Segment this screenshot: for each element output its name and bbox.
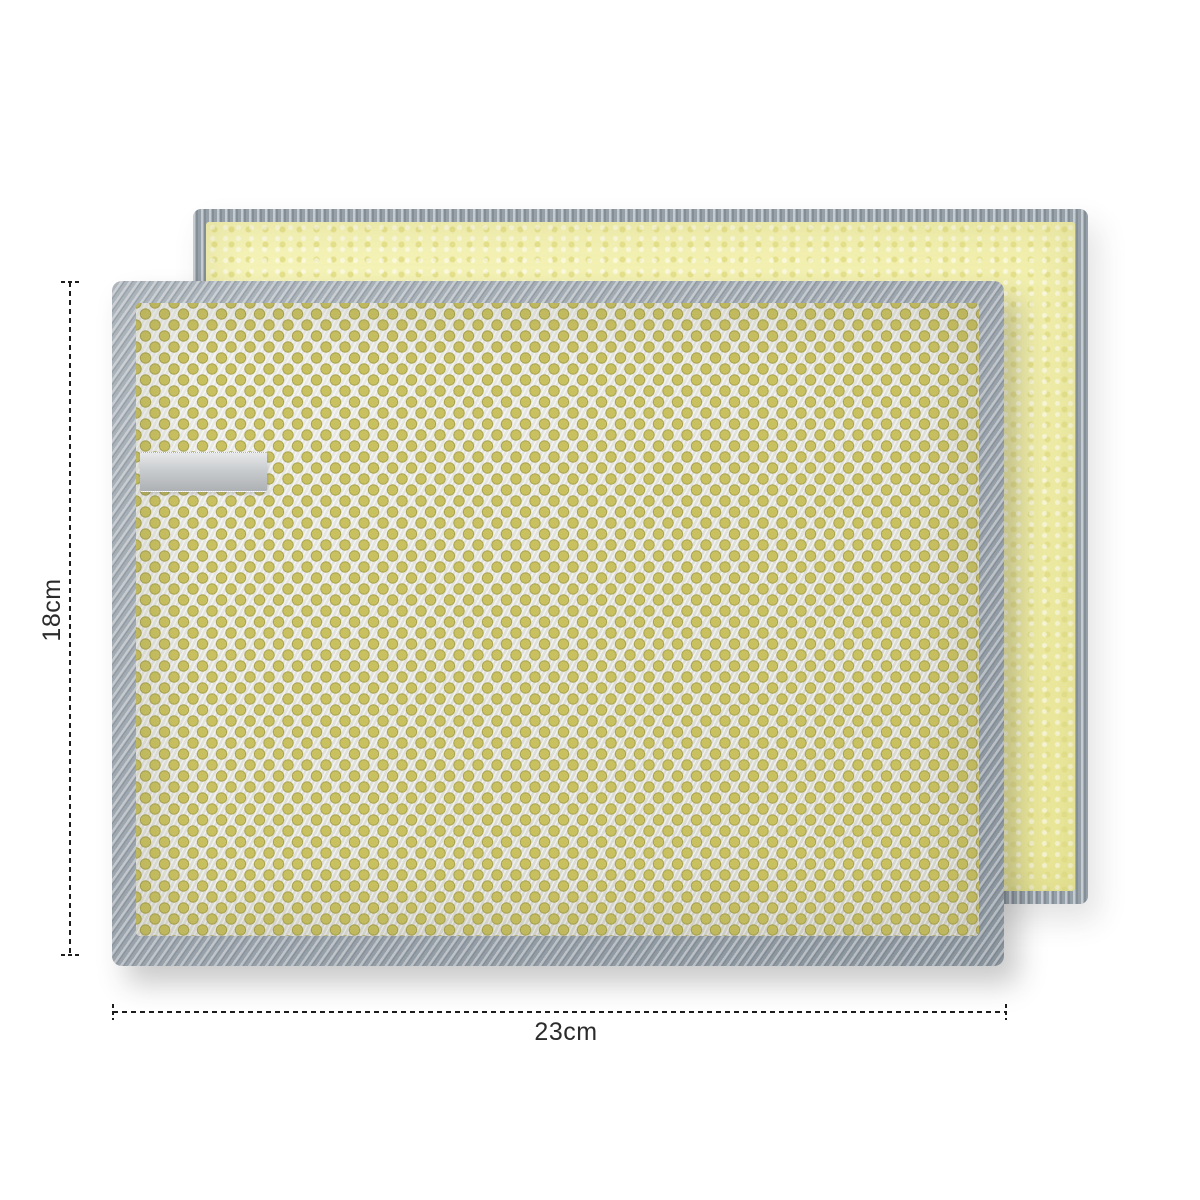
width-dimension-right-cap [1005, 1004, 1007, 1020]
product-photo: 18cm 23cm [0, 0, 1200, 1200]
scrub-pad-front [112, 281, 1004, 966]
height-dimension-bottom-cap [61, 954, 79, 956]
width-dimension-left-cap [112, 1004, 114, 1020]
width-dimension-label: 23cm [516, 1017, 616, 1047]
wire-mesh-surface [136, 303, 979, 936]
ribbon-tag [140, 452, 267, 492]
height-dimension-line [69, 282, 71, 955]
height-dimension-top-cap [61, 281, 79, 283]
height-dimension-label: 18cm [37, 550, 67, 670]
width-dimension-line [113, 1011, 1006, 1013]
